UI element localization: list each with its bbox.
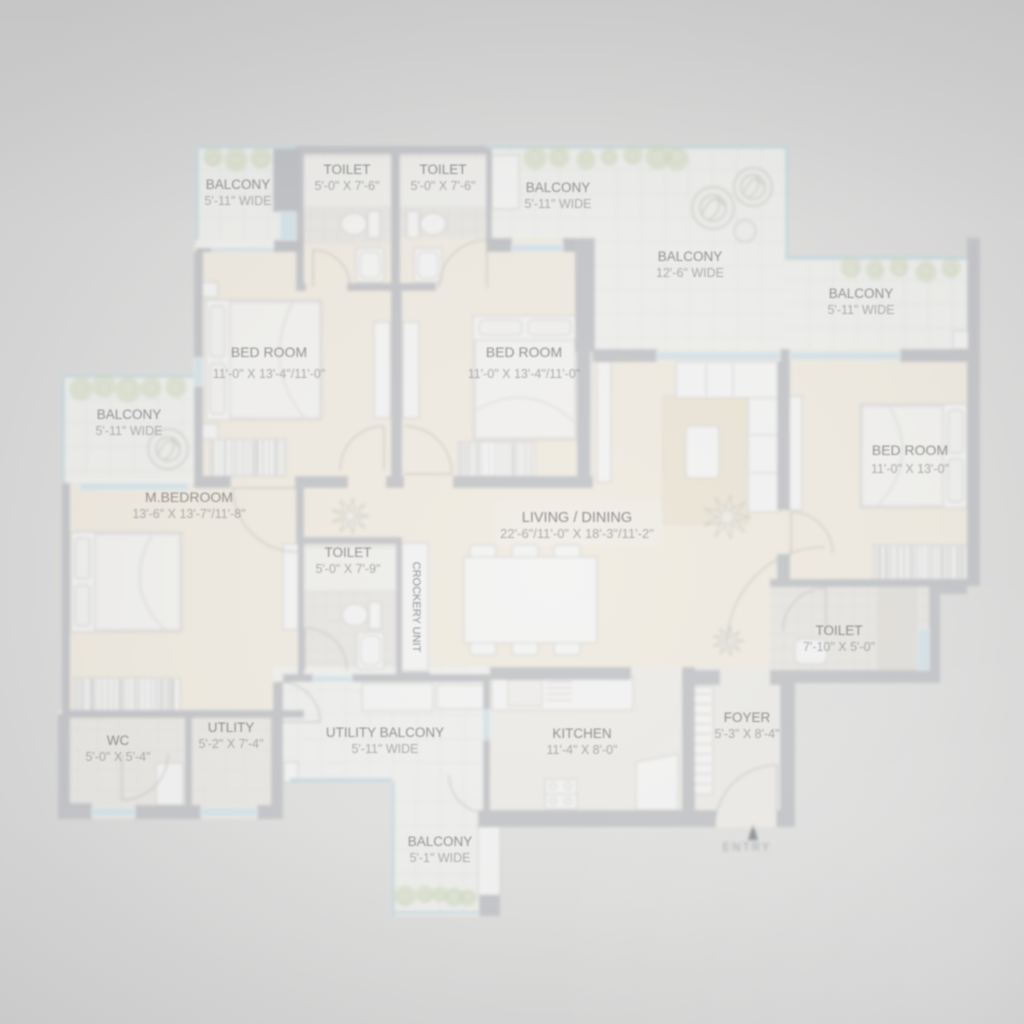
svg-text:12'-6" WIDE: 12'-6" WIDE <box>656 266 724 280</box>
svg-text:FOYER: FOYER <box>724 710 771 725</box>
svg-text:UTLITY: UTLITY <box>208 720 255 735</box>
svg-text:11'-4" X 8'-0": 11'-4" X 8'-0" <box>546 743 617 757</box>
svg-text:7'-10" X 5'-0": 7'-10" X 5'-0" <box>803 640 875 654</box>
svg-text:BALCONY: BALCONY <box>658 249 723 264</box>
svg-text:TOILET: TOILET <box>324 545 371 560</box>
svg-text:KITCHEN: KITCHEN <box>552 726 611 741</box>
svg-text:LIVING / DINING: LIVING / DINING <box>522 510 632 526</box>
svg-text:BALCONY: BALCONY <box>526 180 591 195</box>
svg-text:5'-0" X 7'-6": 5'-0" X 7'-6" <box>314 179 379 193</box>
svg-text:TOILET: TOILET <box>815 623 862 638</box>
svg-text:11'-0" X 13'-4"/11'-0": 11'-0" X 13'-4"/11'-0" <box>213 367 325 381</box>
svg-text:5'-11" WIDE: 5'-11" WIDE <box>351 742 418 756</box>
svg-text:BALCONY: BALCONY <box>408 834 473 849</box>
svg-text:BED ROOM: BED ROOM <box>486 344 562 360</box>
svg-text:5'-11" WIDE: 5'-11" WIDE <box>827 303 894 317</box>
svg-text:5'-3" X 8'-4": 5'-3" X 8'-4" <box>714 727 779 741</box>
svg-text:BED ROOM: BED ROOM <box>231 344 307 360</box>
svg-text:ENTRY: ENTRY <box>723 842 772 854</box>
svg-text:22'-6"/11'-0" X 18'-3"/11'-2": 22'-6"/11'-0" X 18'-3"/11'-2" <box>500 526 654 541</box>
svg-text:5'-11" WIDE: 5'-11" WIDE <box>524 197 591 211</box>
svg-text:UTILITY BALCONY: UTILITY BALCONY <box>326 725 444 740</box>
svg-text:TOILET: TOILET <box>419 162 466 177</box>
svg-text:M.BEDROOM: M.BEDROOM <box>145 489 233 505</box>
svg-text:TOILET: TOILET <box>323 162 370 177</box>
svg-text:11'-0" X 13'-0": 11'-0" X 13'-0" <box>871 462 949 476</box>
svg-text:13'-6" X 13'-7"/11'-8": 13'-6" X 13'-7"/11'-8" <box>132 507 245 521</box>
svg-text:5'-11" WIDE: 5'-11" WIDE <box>95 424 162 438</box>
svg-text:BALCONY: BALCONY <box>97 407 162 422</box>
svg-text:WC: WC <box>107 733 130 748</box>
svg-text:BED ROOM: BED ROOM <box>872 442 948 458</box>
svg-text:BALCONY: BALCONY <box>206 177 271 192</box>
svg-text:5'-0" X 7'-6": 5'-0" X 7'-6" <box>410 179 475 193</box>
svg-text:BALCONY: BALCONY <box>829 286 894 301</box>
svg-text:5'-1" WIDE: 5'-1" WIDE <box>410 851 471 865</box>
svg-text:5'-0" X 7'-9": 5'-0" X 7'-9" <box>315 562 380 576</box>
svg-text:CROCKERY UNIT: CROCKERY UNIT <box>410 562 422 653</box>
svg-text:5'-11" WIDE: 5'-11" WIDE <box>204 194 271 208</box>
svg-text:5'-2" X 7'-4": 5'-2" X 7'-4" <box>198 737 263 751</box>
svg-text:11'-0" X 13'-4"/11'-0": 11'-0" X 13'-4"/11'-0" <box>468 367 580 381</box>
svg-text:5'-0" X 5'-4": 5'-0" X 5'-4" <box>85 750 150 764</box>
